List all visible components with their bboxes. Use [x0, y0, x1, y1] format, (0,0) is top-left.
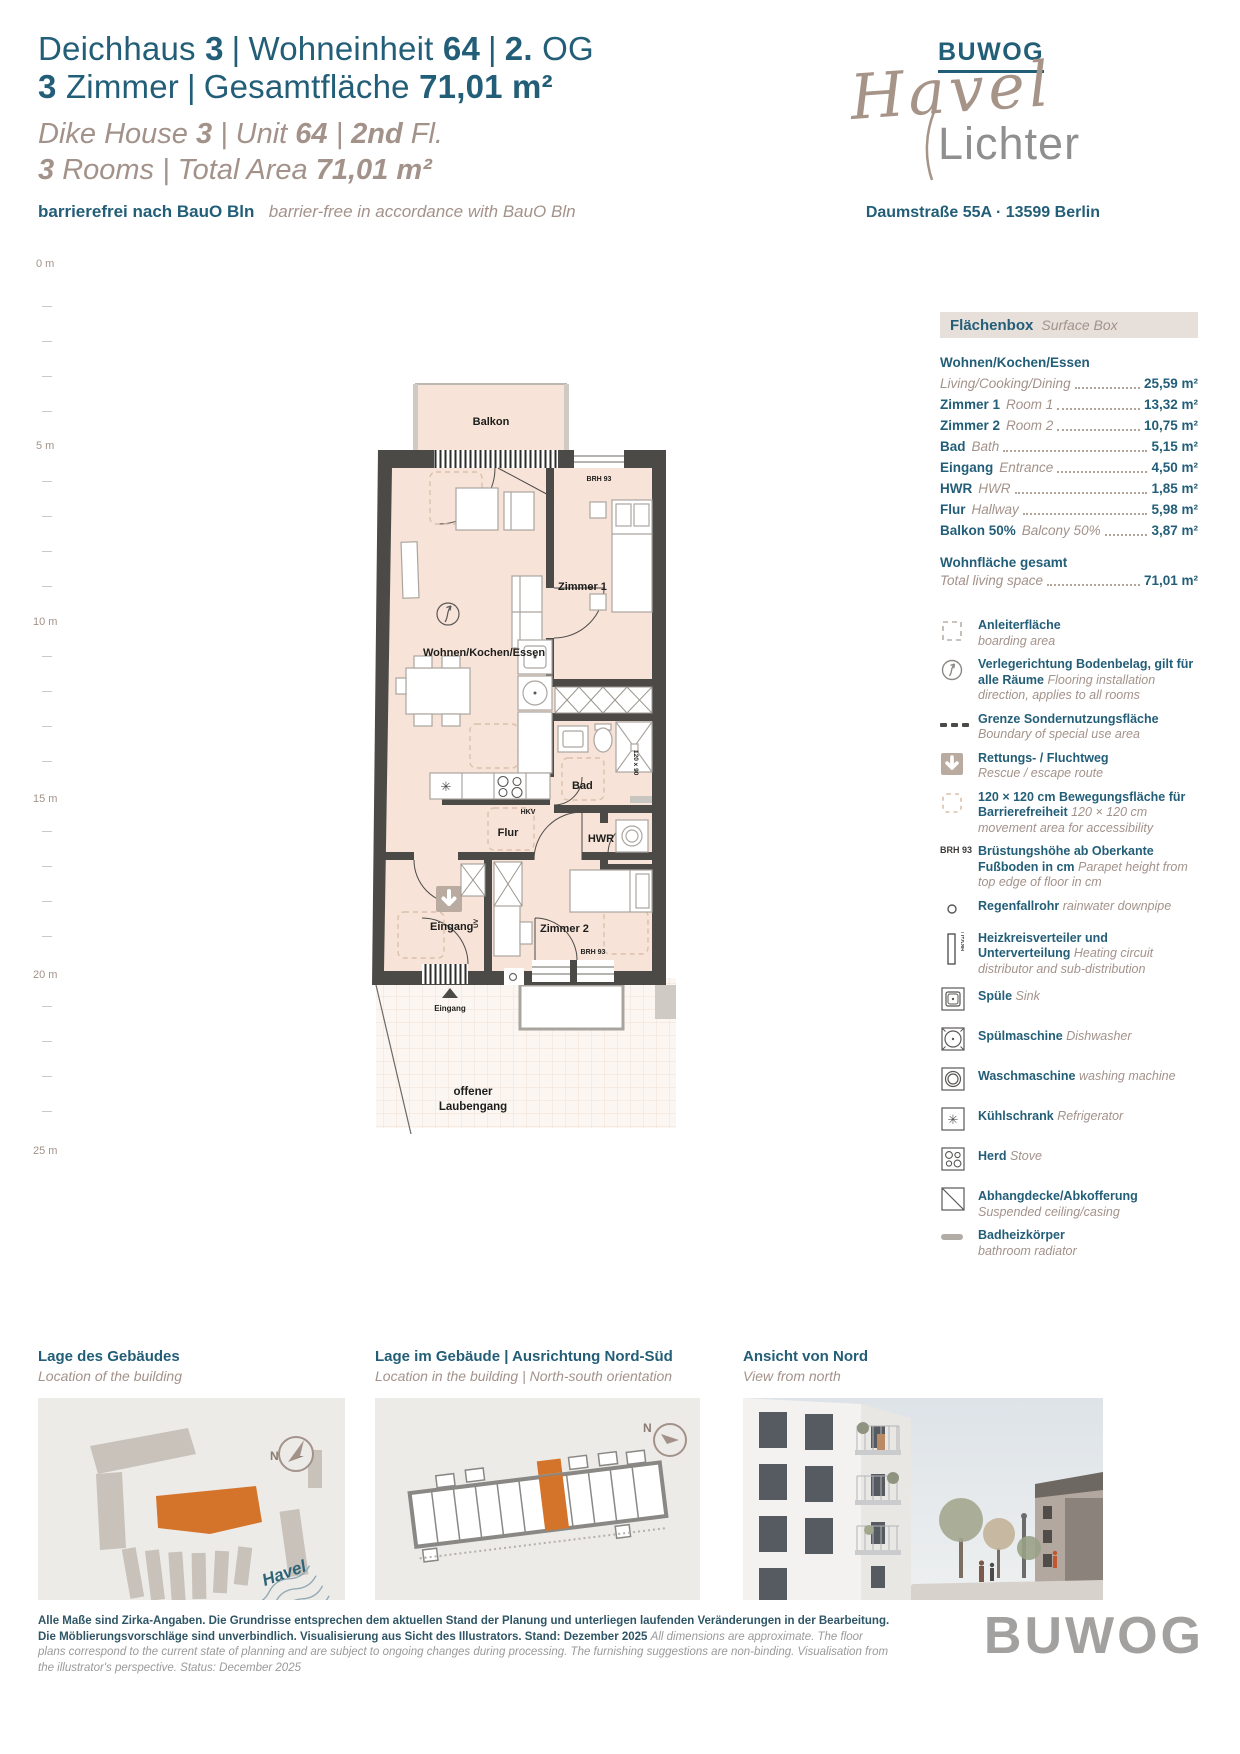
parapet-height-icon: BRH 93: [940, 844, 978, 891]
surface-row: Zimmer 1Room 113,32 m²: [940, 394, 1198, 415]
flur-label: Flur: [498, 827, 519, 839]
wohnen-label: Wohnen/Kochen/Essen: [423, 647, 545, 659]
scale-label-20m: 20 m: [33, 967, 57, 983]
svg-text:Eingang: Eingang: [434, 1004, 466, 1013]
legend-item: HKV+LM Heizkreisverteiler und Unterverte…: [940, 931, 1200, 978]
rainwater-downpipe-icon: [940, 899, 978, 923]
floorplan-expose-page: Deichhaus 3|Wohneinheit 64|2. OG 3 Zimme…: [0, 0, 1240, 1754]
shower-size-label: 120 x 90: [632, 750, 639, 776]
surface-row: Wohnen/Kochen/Essen: [940, 352, 1198, 373]
legend-item: Anleiterflächeboarding area: [940, 618, 1200, 649]
exterior-view-render: [743, 1398, 1103, 1600]
total-area-row: Total living space71,01 m²: [940, 570, 1198, 591]
special-use-boundary-icon: [940, 712, 978, 743]
building-position-map: N: [375, 1398, 700, 1600]
legend-item: Spülmaschine Dishwasher: [940, 1025, 1200, 1057]
plan-legend: Anleiterflächeboarding area Verlegericht…: [940, 618, 1200, 1267]
zimmer1-label: Zimmer 1: [558, 581, 607, 593]
surface-row: HWRHWR1,85 m²: [940, 478, 1198, 499]
entrance-door-hatch: [422, 964, 468, 984]
legend-item: 120 × 120 cm Bewegungsfläche für Barrier…: [940, 790, 1200, 837]
refrigerator-icon: ✳: [940, 1105, 978, 1137]
zimmer2-window: [532, 960, 614, 982]
title-unit: Wohneinheit: [248, 30, 433, 67]
svg-text:HKV+LM: HKV+LM: [961, 932, 964, 951]
scale-label-10m: 10 m: [33, 614, 57, 630]
flooring-direction-icon: [940, 657, 978, 704]
barrier-free-note: barrierefrei nach BauO Bln barrier-free …: [38, 202, 718, 222]
legend-item: Verlegerichtung Bodenbelag, gilt für all…: [940, 657, 1200, 704]
legend-item: Grenze SondernutzungsflächeBoundary of s…: [940, 712, 1200, 743]
legend-item: Abhangdecke/AbkofferungSuspended ceiling…: [940, 1185, 1200, 1220]
bad-label: Bad: [572, 780, 593, 792]
legend-item: ✳ Kühlschrank Refrigerator: [940, 1105, 1200, 1137]
lichter-logo-text: Lichter: [938, 118, 1080, 170]
panel1-header: Lage des Gebäudes Location of the buildi…: [38, 1348, 358, 1384]
svg-text:N: N: [270, 1449, 279, 1463]
scale-ruler-ticks: [42, 272, 52, 1150]
title-en-line2: 3 Rooms|Total Area 71,01 m²: [38, 152, 718, 188]
scale-label-25m: 25 m: [33, 1143, 57, 1159]
brand-logo: BUWOG Havel Lichter: [850, 28, 1150, 188]
legend-item: Rettungs- / FluchtwegRescue / escape rou…: [940, 751, 1200, 782]
title-de-line1: Deichhaus 3|Wohneinheit 64|2. OG: [38, 30, 718, 68]
balcony-door-hatch: [434, 450, 558, 468]
sink-icon: [940, 985, 978, 1017]
eingang-label: Eingang: [430, 921, 473, 933]
legend-item: Badheizkörperbathroom radiator: [940, 1228, 1200, 1259]
laubengang-label-2: Laubengang: [439, 1101, 507, 1113]
legend-item: Spüle Sink: [940, 985, 1200, 1017]
scale-label-0m: 0 m: [36, 256, 54, 272]
brh-label-top: BRH 93: [587, 476, 612, 483]
total-area-label: Wohnfläche gesamt: [940, 555, 1198, 570]
escape-route-icon: [940, 751, 978, 782]
wardrobe-strip: [555, 687, 652, 713]
surface-row: EingangEntrance4,50 m²: [940, 457, 1198, 478]
balcony: Balkon: [413, 384, 569, 456]
main-building-facade: [743, 1398, 911, 1600]
surface-row: Living/Cooking/Dining25,59 m²: [940, 373, 1198, 394]
surface-box-header: Flächenbox Surface Box: [940, 312, 1198, 338]
movement-area-icon: [940, 790, 978, 837]
brh-label-bottom: BRH 93: [581, 949, 606, 956]
bathroom-radiator-icon: [940, 1228, 978, 1259]
project-address: Daumstraße 55A · 13599 Berlin: [760, 204, 1100, 222]
title-en-line1: Dike House 3|Unit 64|2nd Fl.: [38, 116, 718, 152]
downpipe-marker: [504, 968, 524, 985]
hkv-label: HKV: [521, 809, 536, 816]
svg-text:N: N: [643, 1421, 652, 1435]
floor-plan: offener Laubengang Balkon: [318, 372, 698, 1134]
scale-label-15m: 15 m: [33, 791, 57, 807]
laubengang-label-1: offener: [454, 1086, 494, 1098]
uv-label: UV: [473, 918, 480, 928]
hwr-label: HWR: [588, 833, 614, 845]
zimmer2-label: Zimmer 2: [540, 923, 589, 935]
header-block: Deichhaus 3|Wohneinheit 64|2. OG 3 Zimme…: [38, 30, 718, 222]
title-de-line2: 3 Zimmer|Gesamtfläche 71,01 m²: [38, 68, 718, 106]
svg-text:✳: ✳: [948, 1112, 959, 1127]
bath-radiator: [630, 796, 652, 803]
legend-item: BRH 93 Brüstungshöhe ab Oberkante Fußbod…: [940, 844, 1200, 891]
heating-distributor-icon: HKV+LM: [940, 931, 978, 978]
dishwasher-icon: [940, 1025, 978, 1057]
footer-disclaimer: Alle Maße sind Zirka-Angaben. Die Grundr…: [38, 1614, 893, 1676]
fridge-asterisk: ✳: [441, 779, 452, 794]
legend-item: Regenfallrohr rainwater downpipe: [940, 899, 1200, 923]
suspended-ceiling-icon: [940, 1185, 978, 1220]
legend-item: Waschmaschine washing machine: [940, 1065, 1200, 1097]
surface-row: BadBath5,15 m²: [940, 436, 1198, 457]
surface-box: Flächenbox Surface Box Wohnen/Kochen/Ess…: [940, 312, 1198, 591]
balcony-label: Balkon: [473, 416, 510, 428]
title-house: Deichhaus: [38, 30, 196, 67]
site-map: N Havel: [38, 1398, 345, 1600]
legend-item: Herd Stove: [940, 1145, 1200, 1177]
panel2-header: Lage im Gebäude | Ausrichtung Nord-Süd L…: [375, 1348, 715, 1384]
surface-row: Balkon 50%Balcony 50%3,87 m²: [940, 520, 1198, 541]
washing-machine-icon: [940, 1065, 978, 1097]
zimmer1-window: [574, 450, 624, 468]
panel3-header: Ansicht von Nord View from north: [743, 1348, 1083, 1384]
buwog-footer-logo: BUWOG: [984, 1606, 1204, 1666]
boarding-area-icon: [940, 618, 978, 649]
stove-icon: [940, 1145, 978, 1177]
surface-row: Zimmer 2Room 210,75 m²: [940, 415, 1198, 436]
scale-label-5m: 5 m: [36, 438, 54, 454]
laubengang-area: offener Laubengang: [376, 978, 676, 1134]
surface-row: FlurHallway5,98 m²: [940, 499, 1198, 520]
logo-flourish: [920, 112, 940, 182]
